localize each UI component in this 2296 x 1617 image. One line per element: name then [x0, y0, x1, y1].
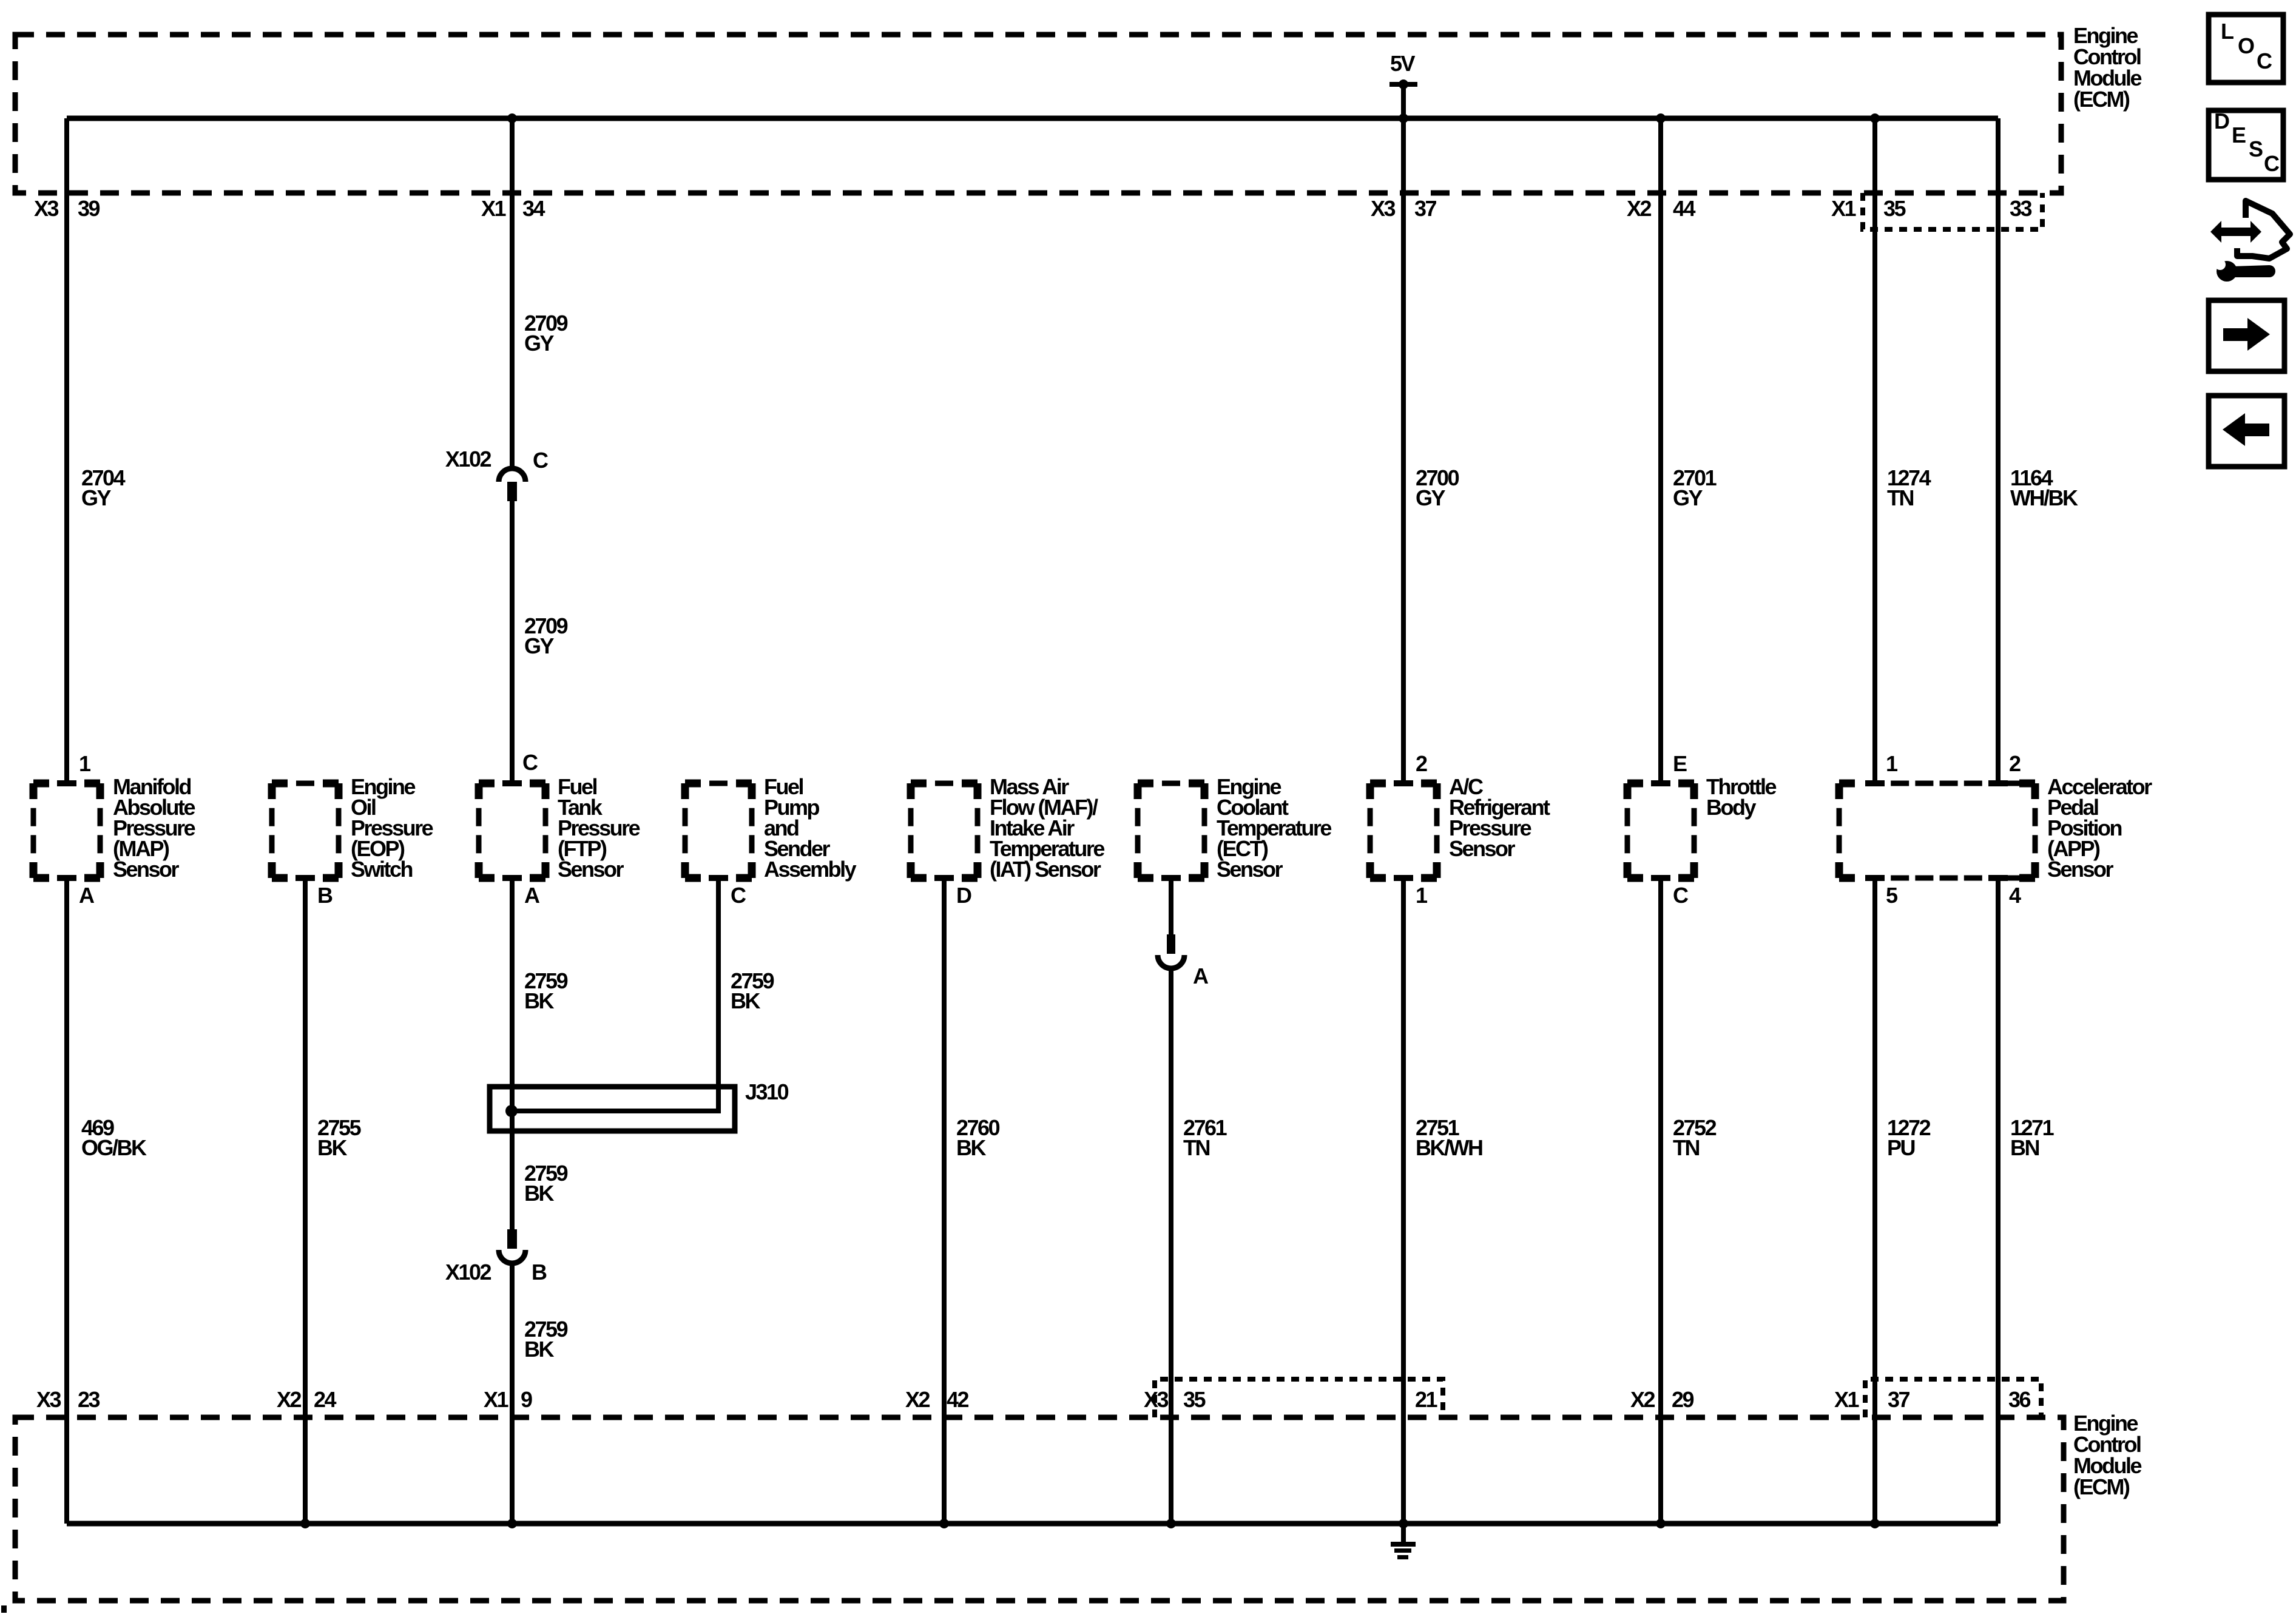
svg-text:X1: X1 — [481, 196, 507, 221]
svg-text:33: 33 — [2010, 196, 2032, 221]
svg-text:24: 24 — [314, 1387, 337, 1412]
svg-text:A: A — [1193, 964, 1209, 988]
svg-text:44: 44 — [1673, 196, 1696, 221]
svg-text:X1: X1 — [1831, 196, 1857, 221]
svg-text:TN: TN — [1887, 485, 1913, 510]
svg-text:C: C — [533, 448, 549, 473]
svg-text:J310: J310 — [745, 1079, 789, 1104]
svg-text:B: B — [532, 1260, 547, 1284]
svg-text:34: 34 — [522, 196, 545, 221]
svg-text:GY: GY — [524, 331, 555, 356]
svg-text:X3: X3 — [36, 1387, 61, 1412]
svg-text:1: 1 — [1416, 883, 1428, 908]
svg-text:21: 21 — [1415, 1387, 1438, 1412]
svg-text:X2: X2 — [1627, 196, 1652, 221]
svg-text:2: 2 — [2009, 751, 2021, 776]
svg-text:1: 1 — [79, 751, 91, 776]
svg-text:L: L — [2221, 19, 2234, 44]
svg-text:X2: X2 — [1630, 1387, 1655, 1412]
svg-text:Switch: Switch — [351, 857, 413, 882]
svg-text:B: B — [317, 883, 333, 908]
svg-text:Sensor: Sensor — [2047, 857, 2114, 882]
svg-text:(IAT) Sensor: (IAT) Sensor — [990, 857, 1101, 882]
svg-text:1: 1 — [1886, 751, 1898, 776]
svg-text:Body: Body — [1706, 795, 1756, 820]
svg-text:S: S — [2249, 137, 2263, 161]
svg-text:O: O — [2238, 33, 2254, 58]
svg-text:X1: X1 — [1834, 1387, 1860, 1412]
svg-text:X2: X2 — [277, 1387, 302, 1412]
svg-text:X1: X1 — [484, 1387, 509, 1412]
svg-text:23: 23 — [78, 1387, 100, 1412]
svg-text:5: 5 — [1886, 883, 1898, 908]
svg-text:PU: PU — [1887, 1135, 1915, 1160]
svg-text:42: 42 — [947, 1387, 969, 1412]
svg-text:2: 2 — [1416, 751, 1427, 776]
svg-text:E: E — [2232, 123, 2246, 147]
svg-text:Sensor: Sensor — [1449, 836, 1516, 861]
svg-text:35: 35 — [1883, 196, 1906, 221]
svg-text:C: C — [522, 750, 538, 775]
svg-text:C: C — [2257, 49, 2272, 73]
svg-text:OG/BK: OG/BK — [81, 1135, 147, 1160]
svg-text:D: D — [956, 883, 971, 908]
svg-text:BK: BK — [524, 1337, 554, 1362]
svg-text:36: 36 — [2008, 1387, 2031, 1412]
svg-text:Sensor: Sensor — [1217, 857, 1283, 882]
svg-text:BK: BK — [731, 988, 760, 1013]
svg-text:29: 29 — [1672, 1387, 1694, 1412]
svg-text:4: 4 — [2009, 883, 2021, 908]
svg-text:Assembly: Assembly — [764, 857, 857, 882]
svg-text:X2: X2 — [905, 1387, 930, 1412]
svg-text:X102: X102 — [445, 447, 491, 471]
svg-text:TN: TN — [1183, 1135, 1209, 1160]
svg-text:A: A — [79, 883, 95, 908]
svg-text:BK: BK — [524, 988, 554, 1013]
svg-text:X3: X3 — [1371, 196, 1396, 221]
svg-text:5V: 5V — [1390, 51, 1416, 76]
svg-text:(ECM): (ECM) — [2073, 1474, 2130, 1499]
svg-text:BK: BK — [524, 1181, 554, 1206]
svg-text:Sensor: Sensor — [113, 857, 180, 882]
svg-text:E: E — [1673, 751, 1687, 776]
svg-text:37: 37 — [1888, 1387, 1910, 1412]
svg-text:D: D — [2214, 109, 2229, 133]
svg-text:WH/BK: WH/BK — [2010, 485, 2078, 510]
svg-text:X102: X102 — [445, 1260, 491, 1284]
svg-text:C: C — [1673, 883, 1689, 908]
svg-text:X3: X3 — [34, 196, 59, 221]
svg-text:C: C — [731, 883, 746, 908]
svg-text:BK: BK — [956, 1135, 986, 1160]
svg-text:37: 37 — [1414, 196, 1437, 221]
svg-text:GY: GY — [1673, 485, 1703, 510]
svg-text:BK: BK — [317, 1135, 347, 1160]
svg-text:C: C — [2264, 151, 2280, 176]
svg-text:BK/WH: BK/WH — [1416, 1135, 1482, 1160]
svg-text:GY: GY — [81, 485, 112, 510]
svg-text:TN: TN — [1673, 1135, 1699, 1160]
svg-text:GY: GY — [1416, 485, 1446, 510]
svg-text:A: A — [524, 883, 540, 908]
svg-text:(ECM): (ECM) — [2073, 87, 2130, 112]
svg-text:35: 35 — [1183, 1387, 1206, 1412]
svg-text:9: 9 — [521, 1387, 532, 1412]
svg-text:GY: GY — [524, 633, 555, 658]
svg-text:39: 39 — [78, 196, 100, 221]
svg-text:BN: BN — [2010, 1135, 2039, 1160]
svg-text:Sensor: Sensor — [558, 857, 624, 882]
